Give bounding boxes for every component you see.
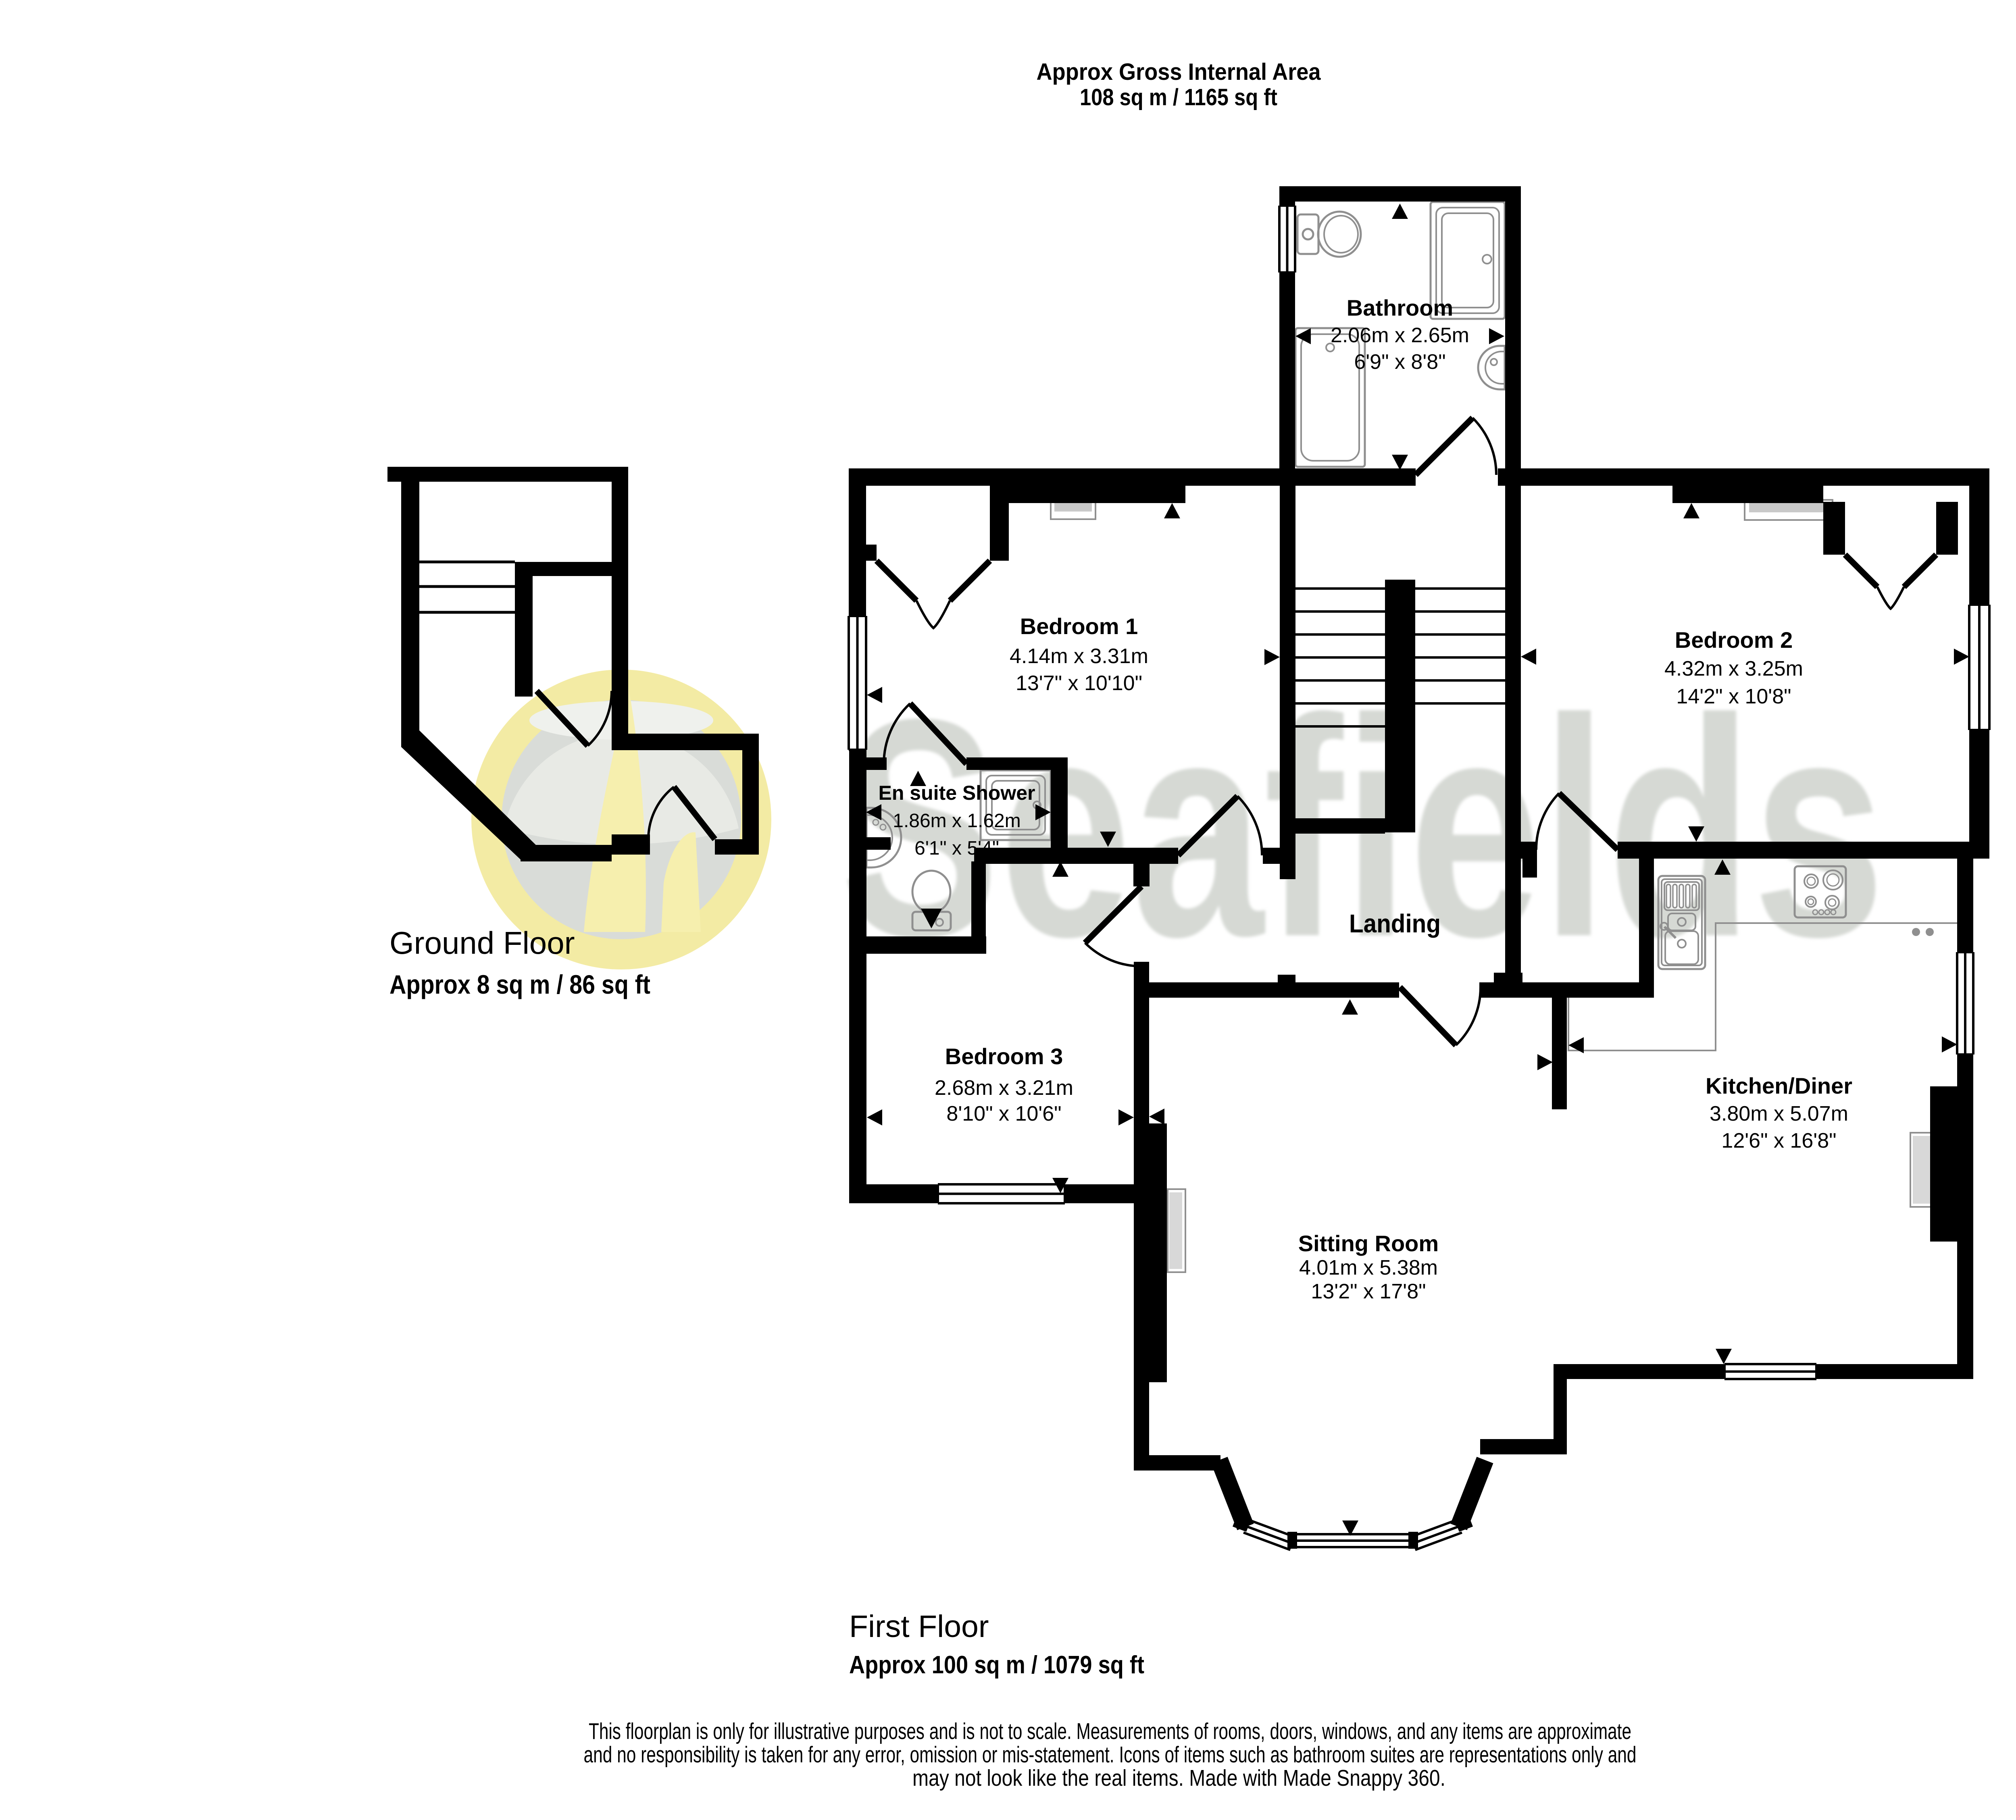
- svg-text:14'2" x 10'8": 14'2" x 10'8": [1676, 685, 1791, 708]
- svg-text:13'2" x 17'8": 13'2" x 17'8": [1311, 1280, 1426, 1303]
- svg-text:12'6" x 16'8": 12'6" x 16'8": [1721, 1129, 1836, 1152]
- svg-text:First Floor: First Floor: [849, 1609, 989, 1644]
- svg-text:En suite Shower: En suite Shower: [879, 782, 1035, 804]
- svg-text:Bathroom: Bathroom: [1347, 295, 1453, 320]
- svg-text:Approx Gross Internal Area: Approx Gross Internal Area: [1037, 59, 1321, 85]
- svg-text:Kitchen/Diner: Kitchen/Diner: [1706, 1073, 1852, 1098]
- svg-text:Sitting Room: Sitting Room: [1298, 1231, 1439, 1256]
- svg-text:3.80m x 5.07m: 3.80m x 5.07m: [1710, 1102, 1848, 1125]
- svg-text:Approx 100 sq m / 1079 sq ft: Approx 100 sq m / 1079 sq ft: [849, 1651, 1144, 1679]
- svg-text:2.06m x 2.65m: 2.06m x 2.65m: [1331, 324, 1469, 347]
- svg-text:6'1" x 5'4": 6'1" x 5'4": [914, 838, 999, 859]
- svg-text:8'10" x 10'6": 8'10" x 10'6": [946, 1102, 1061, 1125]
- svg-text:may not look like the real ite: may not look like the real items. Made w…: [912, 1765, 1445, 1791]
- svg-text:2.68m x 3.21m: 2.68m x 3.21m: [935, 1076, 1073, 1100]
- svg-text:Ground Floor: Ground Floor: [389, 925, 575, 961]
- svg-text:Bedroom 1: Bedroom 1: [1020, 614, 1138, 639]
- svg-text:4.01m x 5.38m: 4.01m x 5.38m: [1299, 1256, 1438, 1279]
- svg-text:This floorplan is only for ill: This floorplan is only for illustrative …: [589, 1718, 1631, 1744]
- svg-text:Approx 8 sq m / 86 sq ft: Approx 8 sq m / 86 sq ft: [389, 969, 650, 999]
- svg-text:108 sq m / 1165 sq ft: 108 sq m / 1165 sq ft: [1080, 84, 1277, 110]
- svg-text:6'9" x 8'8": 6'9" x 8'8": [1354, 350, 1445, 374]
- svg-text:and no responsibility is taken: and no responsibility is taken for any e…: [584, 1742, 1637, 1768]
- svg-text:13'7" x 10'10": 13'7" x 10'10": [1016, 672, 1142, 695]
- svg-text:4.14m x 3.31m: 4.14m x 3.31m: [1010, 645, 1148, 668]
- svg-text:Landing: Landing: [1349, 909, 1441, 938]
- svg-text:4.32m x 3.25m: 4.32m x 3.25m: [1664, 657, 1803, 680]
- svg-text:1.86m x 1.62m: 1.86m x 1.62m: [893, 810, 1020, 832]
- svg-text:Bedroom 2: Bedroom 2: [1675, 627, 1793, 653]
- svg-text:Bedroom 3: Bedroom 3: [945, 1044, 1063, 1069]
